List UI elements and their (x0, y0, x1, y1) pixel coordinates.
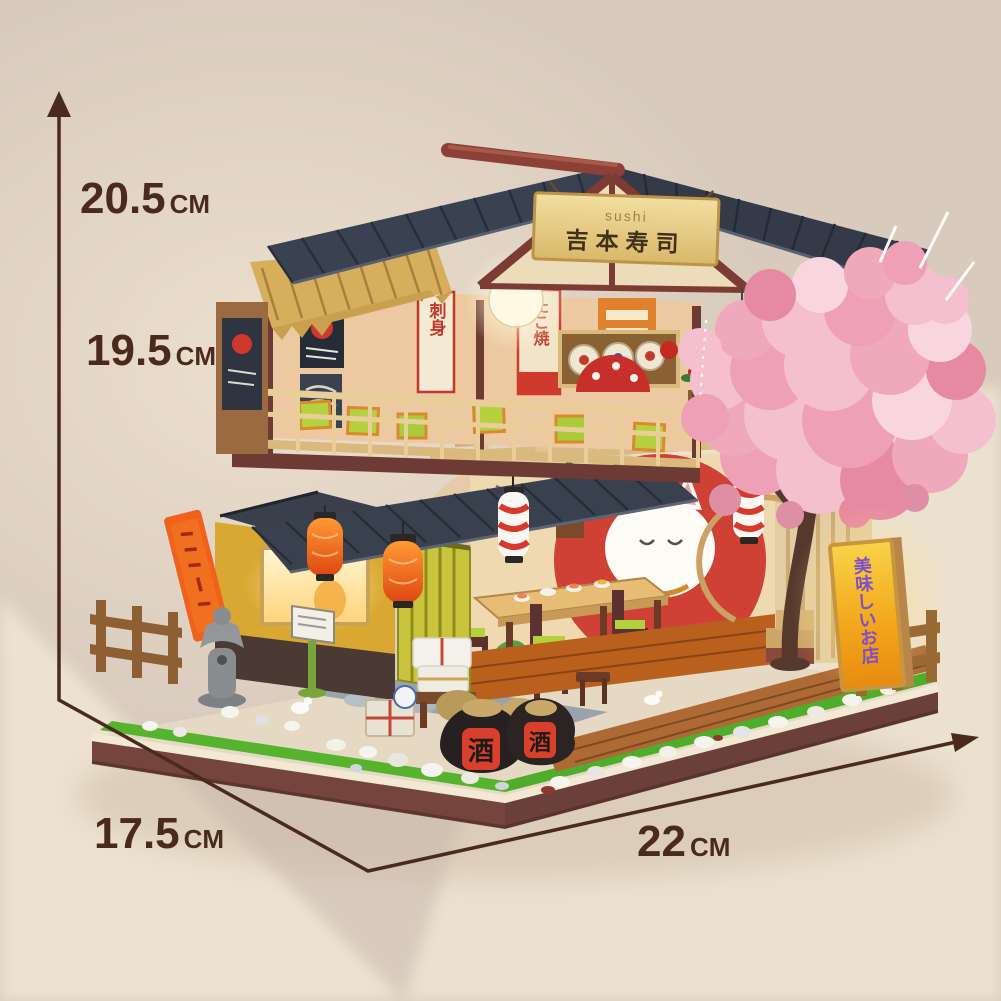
porcelain-jar (394, 686, 416, 708)
standing-sign: 美味しいお店 (830, 537, 915, 693)
banner-sashimi: 刺身 (427, 301, 447, 337)
sake-jar-label-2: 酒 (529, 730, 551, 755)
dimension-height-upper: 20.5CM (80, 174, 210, 223)
roof-sign-title: 吉本寿司 (565, 227, 686, 257)
side-wall-left (216, 302, 268, 454)
left-fence (90, 600, 182, 684)
scene-svg: 刺身 たこ焼 (0, 0, 1001, 1001)
right-yard: 美味しいお店 (790, 505, 950, 696)
sake-jar-label-1: 酒 (468, 736, 494, 766)
sake-jars: 酒 酒 (436, 690, 575, 773)
dimension-height-lower: 19.5CM (86, 326, 216, 375)
product-photo-stage: 刺身 たこ焼 (0, 0, 1001, 1001)
roof-sign-subtitle: sushi (605, 207, 648, 224)
